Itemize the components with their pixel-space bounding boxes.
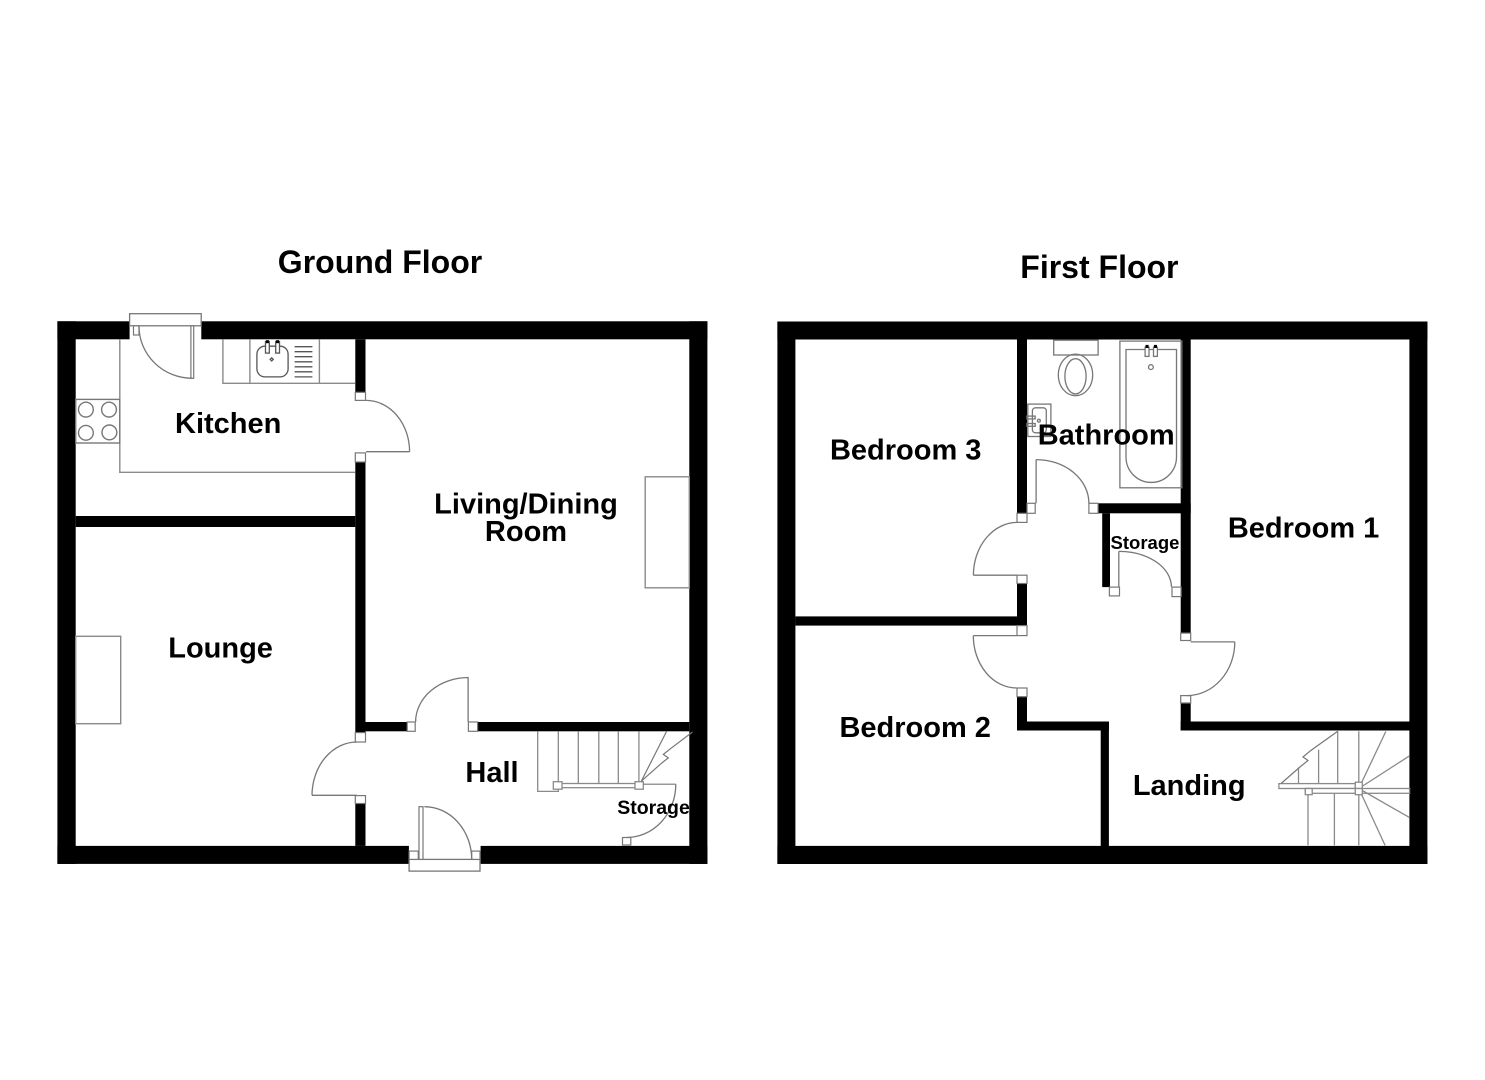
svg-text:Bedroom 1: Bedroom 1 (1228, 512, 1379, 544)
svg-text:First Floor: First Floor (1020, 249, 1178, 285)
svg-text:Bedroom 3: Bedroom 3 (830, 435, 981, 467)
svg-text:Bathroom: Bathroom (1038, 420, 1175, 452)
svg-text:Ground Floor: Ground Floor (278, 244, 482, 280)
svg-text:Kitchen: Kitchen (175, 408, 281, 440)
svg-text:Landing: Landing (1133, 770, 1246, 802)
svg-text:Storage: Storage (1111, 532, 1180, 553)
svg-text:Hall: Hall (465, 757, 518, 789)
svg-text:Lounge: Lounge (168, 633, 273, 665)
svg-text:Bedroom 2: Bedroom 2 (839, 712, 990, 744)
svg-text:Storage: Storage (617, 797, 690, 819)
svg-text:Room: Room (485, 516, 567, 548)
